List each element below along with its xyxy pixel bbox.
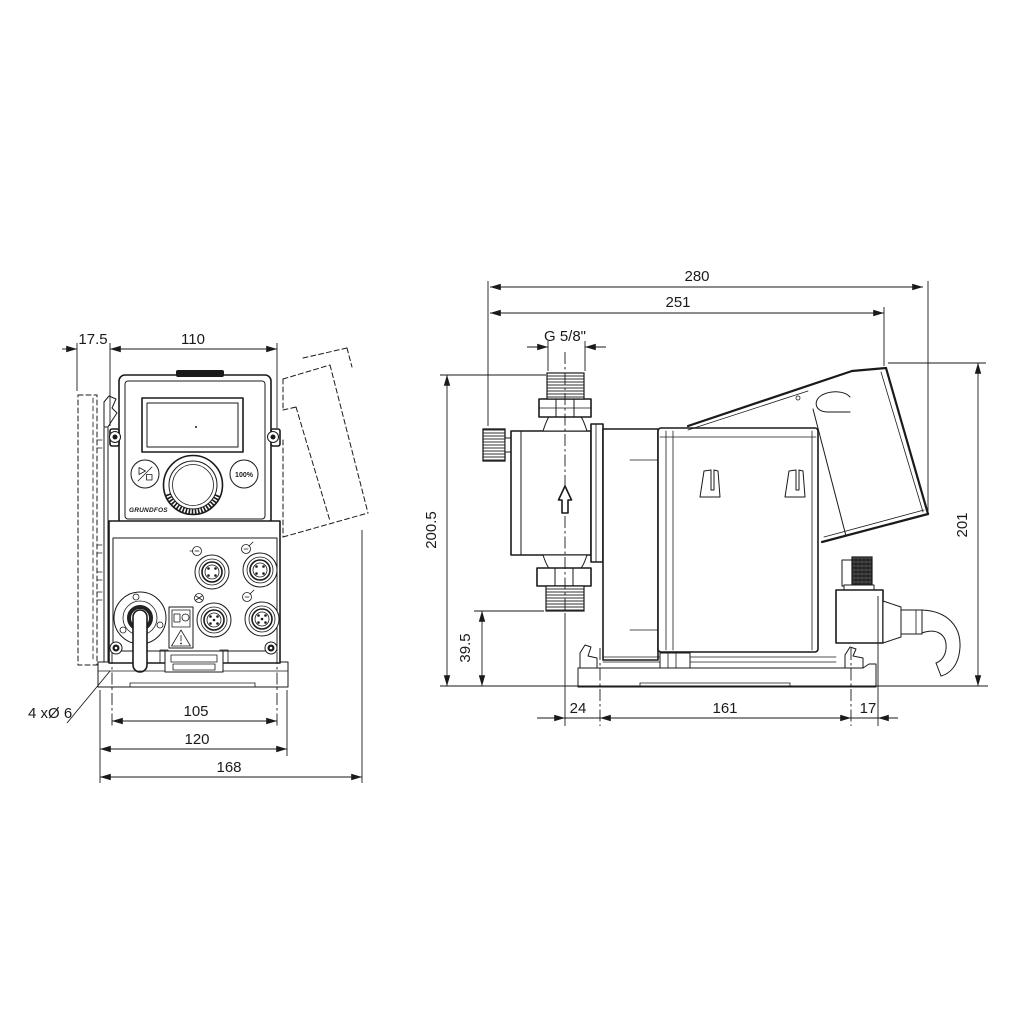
dimensional-drawing: 100% GRUNDFOS bbox=[0, 0, 1024, 1024]
dim-connection-height: 39.5 bbox=[457, 633, 474, 662]
panel-screw-left bbox=[110, 432, 121, 443]
strain-relief bbox=[883, 601, 901, 643]
bottom-fitting bbox=[537, 568, 591, 611]
connection-panel bbox=[109, 521, 280, 672]
control-panel: 100% GRUNDFOS bbox=[110, 370, 281, 525]
dim-panel-width: 110 bbox=[181, 331, 205, 348]
dim-overall-width: 168 bbox=[216, 759, 241, 776]
din-rail-clip bbox=[165, 651, 223, 672]
grundfos-logo: GRUNDFOS bbox=[129, 507, 168, 514]
top-thread bbox=[547, 373, 584, 399]
dim-base-hole-spacing: 161 bbox=[712, 700, 737, 717]
dim-overall-depth: 280 bbox=[684, 268, 709, 285]
percent-100-button[interactable]: 100% bbox=[230, 460, 258, 488]
percent-100-label: 100% bbox=[235, 472, 254, 479]
connection-stud bbox=[852, 557, 872, 588]
m12-connector[interactable] bbox=[245, 602, 279, 636]
start-stop-button[interactable] bbox=[131, 460, 159, 488]
panel-screw-right bbox=[268, 432, 279, 443]
power-connection bbox=[836, 557, 960, 676]
panel-top-cap bbox=[176, 370, 224, 377]
dim-height-overall: 200.5 bbox=[423, 511, 440, 549]
dim-base-front-offset: 24 bbox=[570, 700, 587, 717]
m12-connector[interactable] bbox=[195, 555, 229, 589]
connection-box bbox=[836, 590, 883, 643]
side-view: 280 251 G 5/8" 200.5 39.5 201 bbox=[423, 268, 988, 726]
power-cable-side bbox=[922, 610, 960, 676]
dim-connection-thread: G 5/8" bbox=[544, 328, 586, 345]
warning-label bbox=[169, 607, 193, 648]
motor-housing bbox=[603, 428, 818, 660]
dim-base-width: 120 bbox=[184, 731, 209, 748]
click-wheel[interactable] bbox=[164, 456, 223, 515]
panel-screw-bottom-right bbox=[265, 642, 277, 654]
bracket-hook bbox=[816, 392, 850, 412]
dim-wall-plate-offset: 17.5 bbox=[78, 331, 107, 348]
drawing-canvas: 100% GRUNDFOS bbox=[0, 0, 1024, 1024]
mount-bracket-dashed bbox=[283, 348, 368, 537]
dim-depth-to-bracket: 251 bbox=[665, 294, 690, 311]
front-view: 100% GRUNDFOS bbox=[28, 331, 368, 783]
vent-valve-knob[interactable] bbox=[483, 429, 505, 461]
dosing-head bbox=[483, 352, 603, 615]
m12-connector[interactable] bbox=[197, 603, 231, 637]
dim-bracket-height: 201 bbox=[954, 512, 971, 537]
mount-hook bbox=[104, 396, 117, 427]
mounting-holes-note: 4 xØ 6 bbox=[28, 705, 72, 722]
m12-connector[interactable] bbox=[243, 553, 277, 587]
power-cable-front bbox=[133, 610, 147, 672]
dim-base-rear-offset: 17 bbox=[860, 700, 877, 717]
dim-hole-spacing: 105 bbox=[183, 703, 208, 720]
